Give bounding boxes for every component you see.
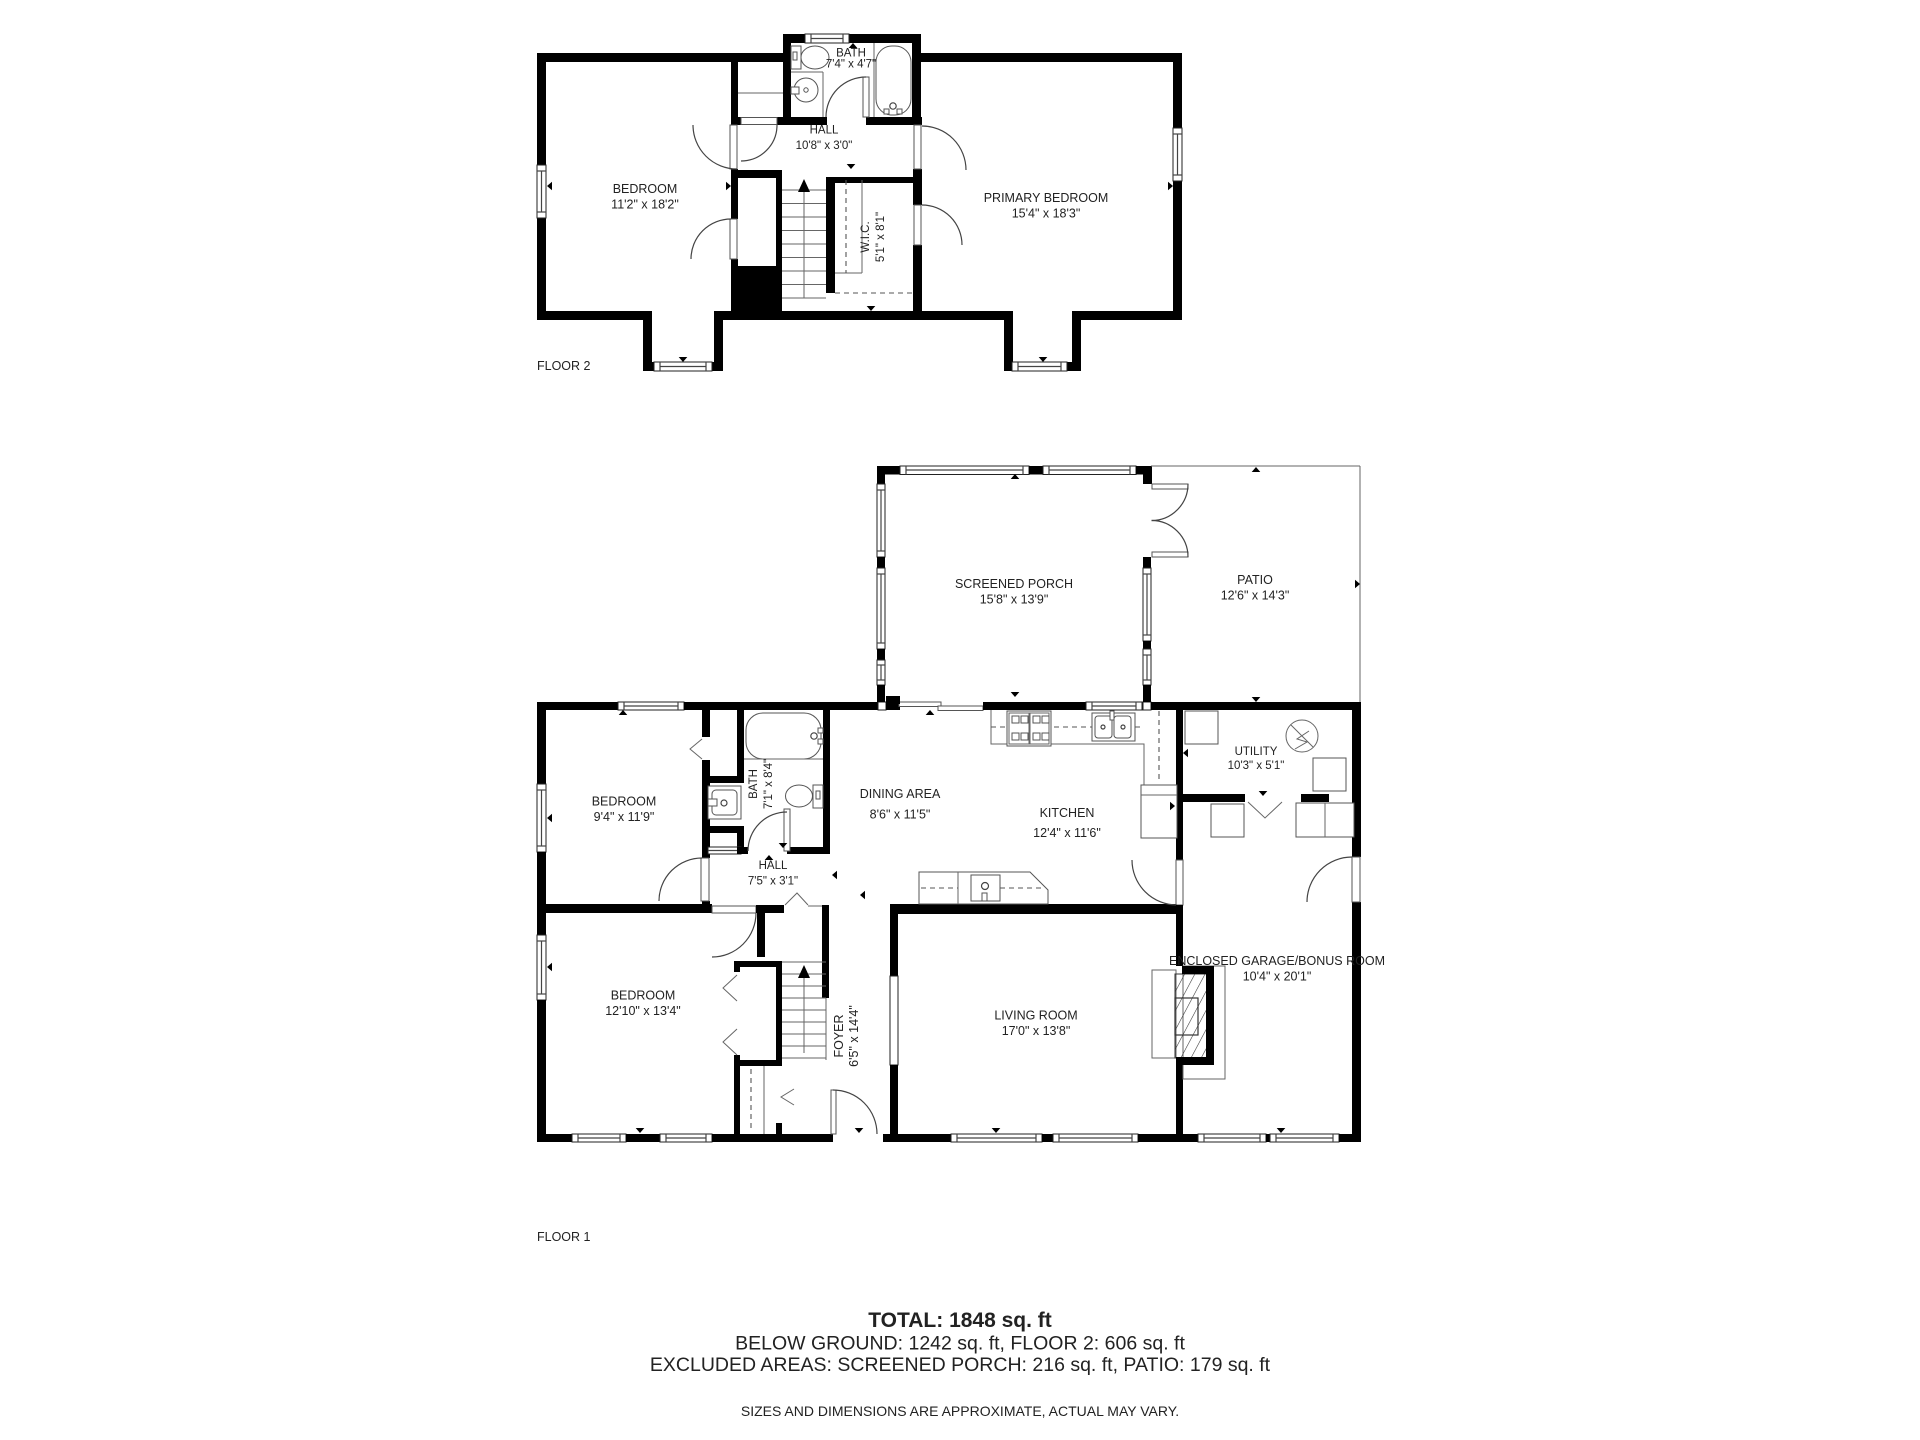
svg-text:9'4" x 11'9": 9'4" x 11'9" (594, 810, 655, 824)
svg-text:7'4" x 4'7": 7'4" x 4'7" (826, 59, 876, 71)
svg-text:LIVING ROOM: LIVING ROOM (994, 1009, 1077, 1023)
svg-text:10'3" x 5'1": 10'3" x 5'1" (1228, 760, 1285, 772)
svg-text:DINING AREA: DINING AREA (860, 787, 941, 801)
svg-text:PATIO: PATIO (1237, 573, 1273, 587)
svg-text:8'6" x 11'5": 8'6" x 11'5" (870, 808, 931, 822)
svg-text:BEDROOM: BEDROOM (613, 182, 678, 196)
svg-text:ENCLOSED GARAGE/BONUS ROOM: ENCLOSED GARAGE/BONUS ROOM (1169, 954, 1385, 968)
svg-text:TOTAL: 1848 sq. ft: TOTAL: 1848 sq. ft (868, 1309, 1052, 1332)
svg-text:6'5" x 14'4": 6'5" x 14'4" (847, 1005, 861, 1067)
svg-text:KITCHEN: KITCHEN (1040, 806, 1095, 820)
svg-text:11'2" x 18'2": 11'2" x 18'2" (611, 198, 679, 212)
svg-text:5'1" x 8'1": 5'1" x 8'1" (875, 212, 887, 262)
svg-text:EXCLUDED AREAS: SCREENED PORCH: EXCLUDED AREAS: SCREENED PORCH: 216 sq. … (650, 1354, 1271, 1376)
svg-text:10'4" x 20'1": 10'4" x 20'1" (1243, 970, 1312, 984)
svg-text:12'10" x 13'4": 12'10" x 13'4" (605, 1004, 681, 1018)
svg-text:HALL: HALL (759, 860, 788, 872)
svg-text:BEDROOM: BEDROOM (592, 795, 657, 809)
svg-text:W.I.C.: W.I.C. (860, 221, 872, 252)
svg-text:UTILITY: UTILITY (1235, 746, 1278, 758)
svg-text:PRIMARY BEDROOM: PRIMARY BEDROOM (984, 191, 1109, 205)
svg-text:SIZES AND DIMENSIONS ARE APPRO: SIZES AND DIMENSIONS ARE APPROXIMATE, AC… (741, 1403, 1179, 1419)
svg-text:SCREENED PORCH: SCREENED PORCH (955, 577, 1073, 591)
svg-text:BELOW GROUND: 1242 sq. ft, FLO: BELOW GROUND: 1242 sq. ft, FLOOR 2: 606 … (735, 1333, 1185, 1355)
svg-text:FLOOR 1: FLOOR 1 (537, 1230, 591, 1244)
svg-text:BATH: BATH (748, 769, 760, 799)
svg-text:7'1" x 8'4": 7'1" x 8'4" (763, 759, 775, 809)
svg-text:12'6" x 14'3": 12'6" x 14'3" (1221, 589, 1290, 603)
svg-text:7'5" x 3'1": 7'5" x 3'1" (748, 876, 798, 888)
svg-text:15'4" x 18'3": 15'4" x 18'3" (1012, 207, 1081, 221)
svg-text:17'0" x 13'8": 17'0" x 13'8" (1002, 1024, 1071, 1038)
svg-text:FLOOR 2: FLOOR 2 (537, 359, 591, 373)
svg-text:15'8" x 13'9": 15'8" x 13'9" (980, 593, 1049, 607)
svg-text:HALL: HALL (810, 125, 839, 137)
svg-text:FOYER: FOYER (832, 1014, 846, 1057)
svg-text:BEDROOM: BEDROOM (611, 989, 676, 1003)
svg-text:10'8" x 3'0": 10'8" x 3'0" (796, 140, 853, 152)
svg-text:12'4" x 11'6": 12'4" x 11'6" (1033, 826, 1101, 840)
